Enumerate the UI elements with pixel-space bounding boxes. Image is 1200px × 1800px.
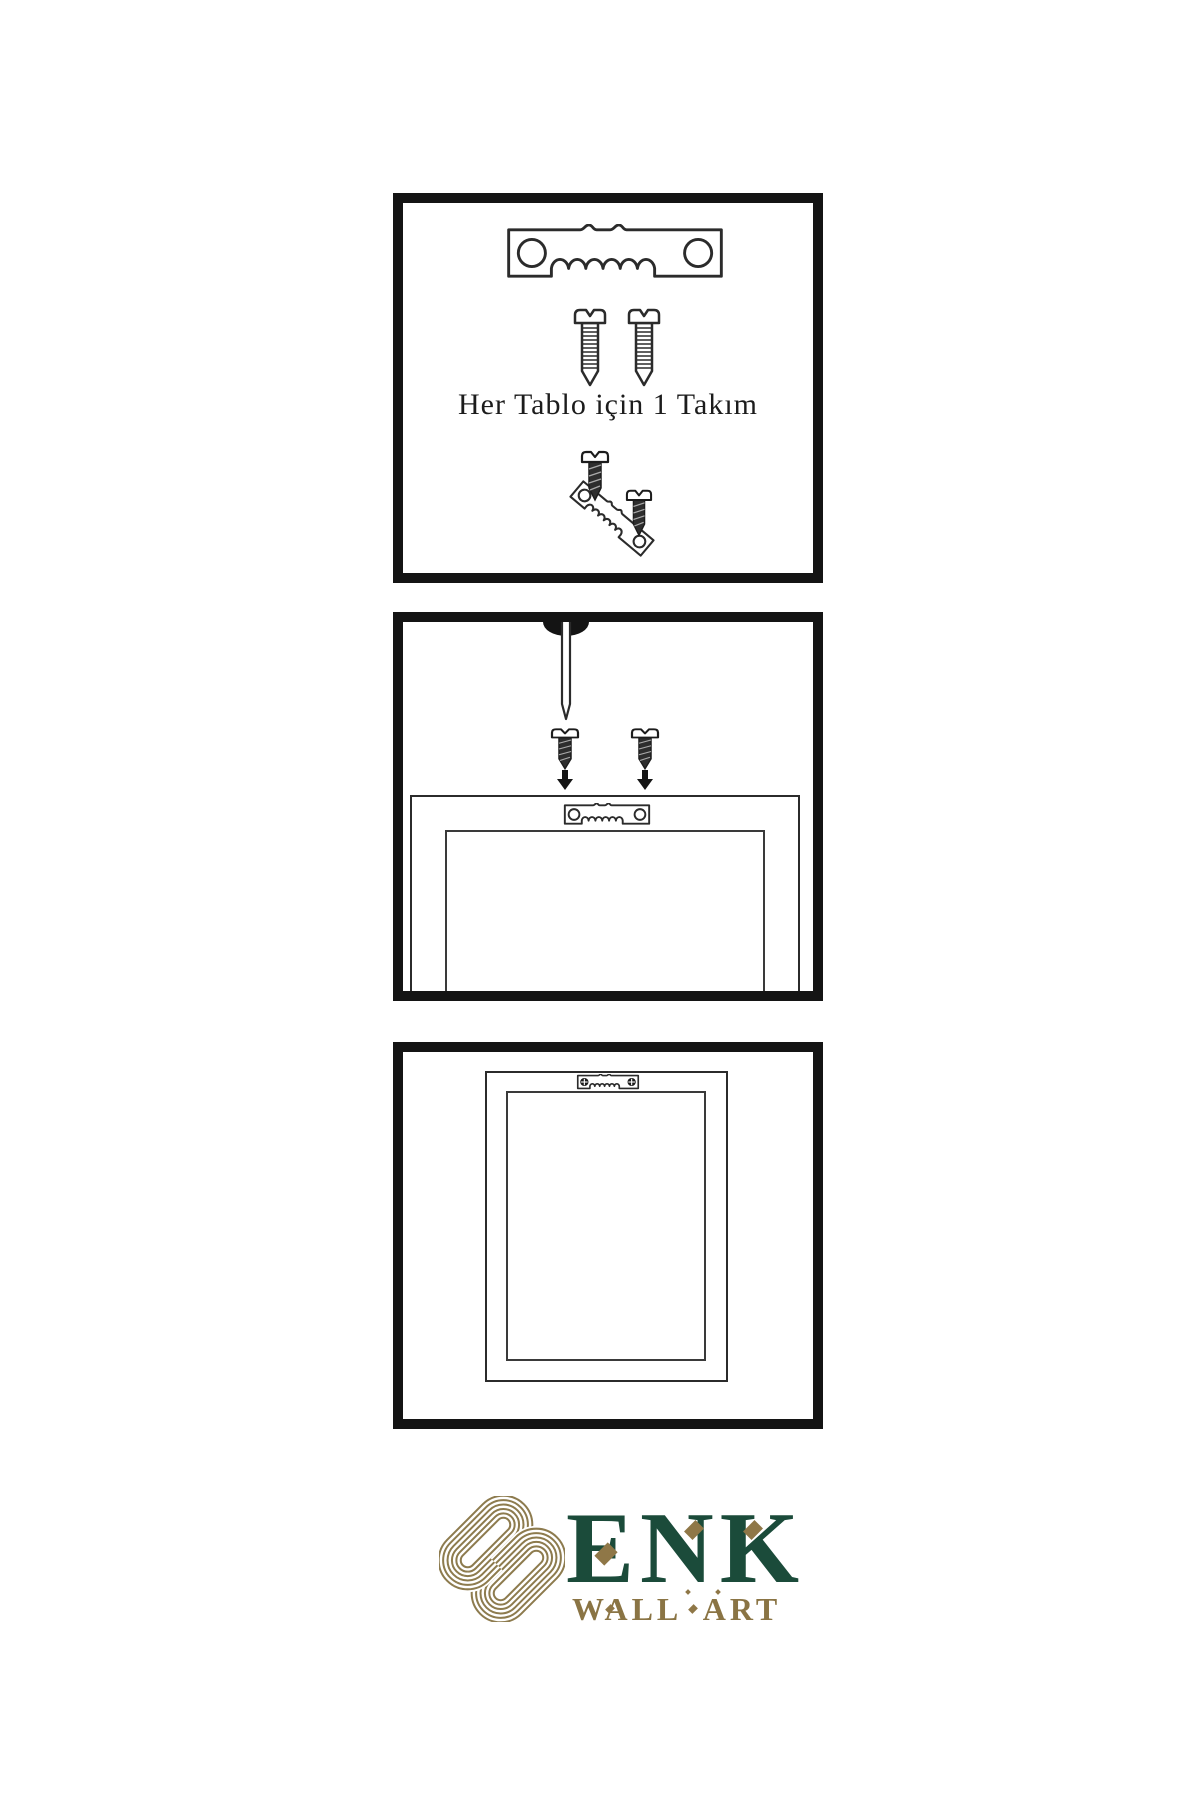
panel-hardware-kit: Her Tablo için 1 Takım: [393, 193, 823, 583]
screw-icon: [578, 448, 612, 504]
arrow-down-icon: [637, 770, 653, 790]
sawtooth-hanger-icon: [554, 803, 660, 826]
panel-hung-frame: [393, 1042, 823, 1429]
wall-nail-icon: [558, 622, 574, 722]
brand-subtitle: WALL ART: [572, 1592, 781, 1626]
mounted-sawtooth-hanger-icon: [575, 1074, 641, 1090]
frame-back-inner-panel: [506, 1091, 706, 1361]
instruction-sheet: Her Tablo için 1 Takım: [0, 0, 1200, 1800]
screw-icon: [623, 487, 655, 539]
panel-mounting-steps: [393, 612, 823, 1001]
screw-head-icon: [628, 1078, 636, 1086]
screw-icon: [548, 726, 582, 772]
interlaced-knot-icon: [439, 1496, 565, 1622]
panel1-caption: Her Tablo için 1 Takım: [403, 389, 813, 421]
arrow-down-icon: [557, 770, 573, 790]
screw-icon: [624, 305, 664, 389]
sawtooth-hanger-icon: [497, 224, 733, 282]
screw-head-icon: [580, 1078, 588, 1086]
screw-icon: [570, 305, 610, 389]
screw-icon: [628, 726, 662, 772]
frame-back-inner-panel: [445, 830, 765, 1001]
